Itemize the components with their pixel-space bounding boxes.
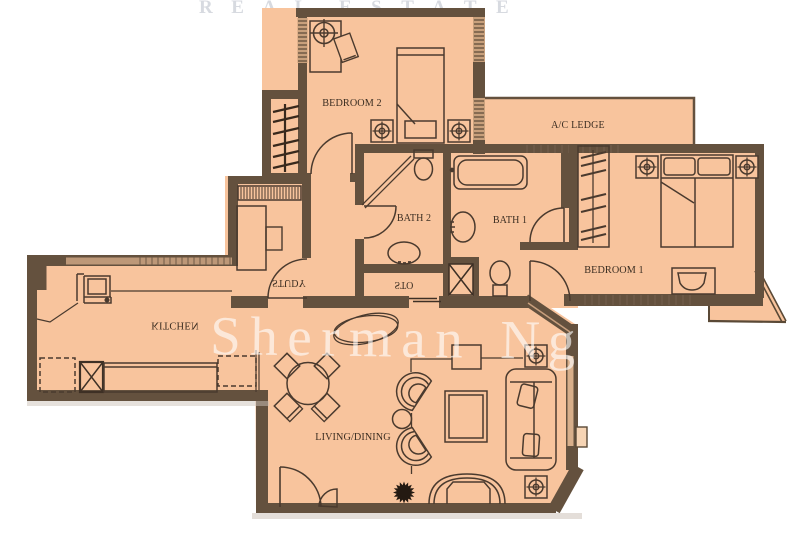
svg-text:Sherman: Sherman: [210, 305, 473, 370]
svg-text:BATH 1: BATH 1: [493, 215, 527, 226]
svg-text:LIVING/DINING: LIVING/DINING: [315, 432, 391, 443]
svg-text:A/C LEDGE: A/C LEDGE: [551, 120, 605, 131]
svg-text:STO: STO: [394, 279, 413, 290]
svg-text:BEDROOM 1: BEDROOM 1: [584, 265, 643, 276]
svg-text:KITCHEN: KITCHEN: [151, 319, 199, 330]
svg-text:BATH 2: BATH 2: [397, 213, 431, 224]
svg-text:Ng: Ng: [500, 309, 584, 371]
svg-text:BEDROOM 2: BEDROOM 2: [322, 98, 381, 109]
svg-text:STUDY: STUDY: [272, 277, 306, 288]
